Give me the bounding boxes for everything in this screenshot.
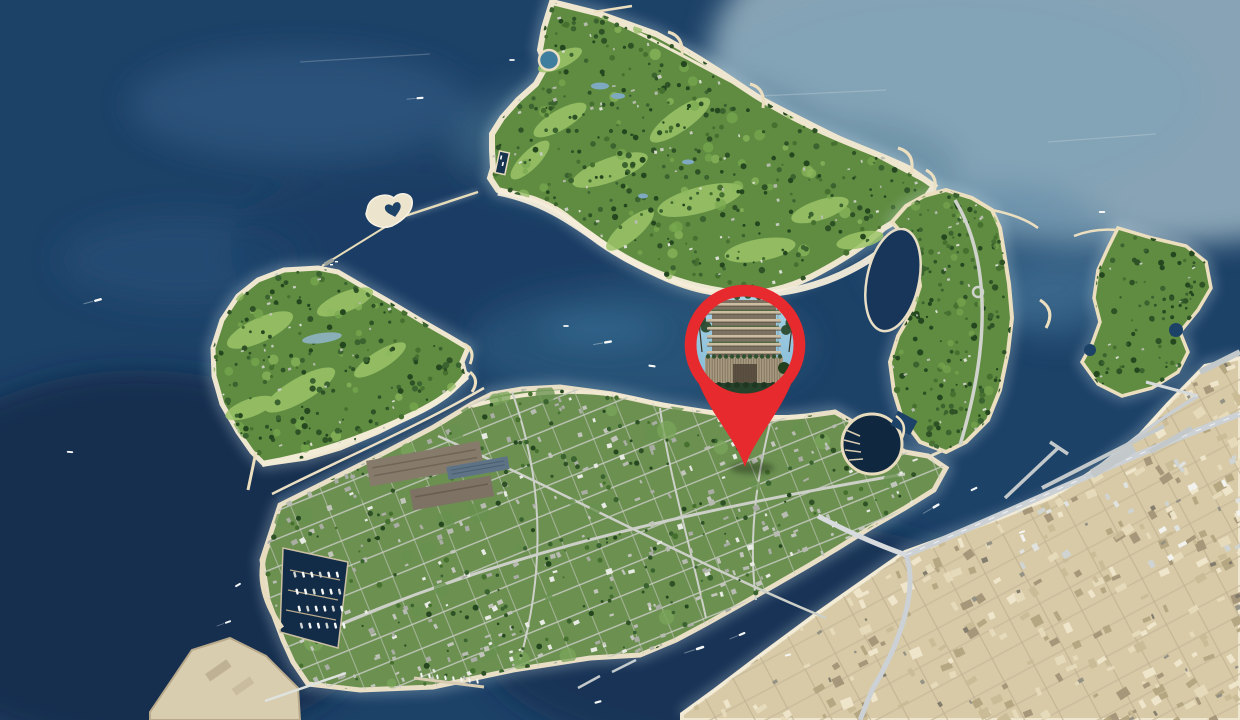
cove: [1169, 323, 1183, 337]
cove: [1084, 344, 1096, 356]
cove-lagoon: [539, 50, 559, 70]
aerial-map: [0, 0, 1240, 720]
aerial-map-view: [0, 0, 1240, 720]
pin-shadow: [730, 462, 774, 474]
